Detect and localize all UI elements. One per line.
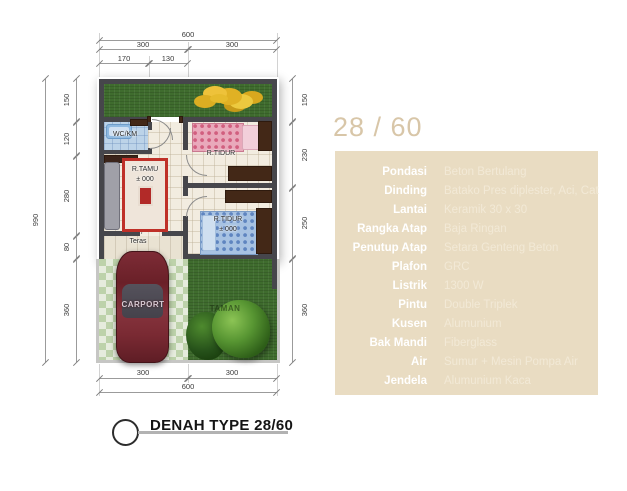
back-garden bbox=[104, 84, 272, 117]
spec-value: Baja Ringan bbox=[444, 220, 507, 239]
spec-label: Dinding bbox=[335, 182, 427, 201]
wall-top bbox=[99, 79, 277, 84]
bed-bedroom1 bbox=[192, 123, 244, 152]
spec-value: Alumunium bbox=[444, 315, 502, 334]
spec-value: Fiberglass bbox=[444, 334, 497, 353]
dim-label-sub-right: 130 bbox=[148, 55, 188, 63]
dim-line-sub-left bbox=[99, 63, 149, 64]
spec-panel: PondasiBeton Bertulang DindingBatako Pre… bbox=[335, 151, 598, 395]
spec-label: Kusen bbox=[335, 315, 427, 334]
spec-row: AirSumur + Mesin Pompa Air bbox=[335, 353, 598, 372]
dim-line-right-1 bbox=[292, 79, 293, 122]
spec-label: Rangka Atap bbox=[335, 220, 427, 239]
spec-value: Beton Bertulang bbox=[444, 163, 526, 182]
room-label-bedroom2: R.TIDUR bbox=[203, 216, 253, 224]
spec-label: Pondasi bbox=[335, 163, 427, 182]
spec-row: Penutup AtapSetara Genteng Beton bbox=[335, 239, 598, 258]
dim-label-bottom-left: 300 bbox=[123, 369, 163, 377]
spec-label: Plafon bbox=[335, 258, 427, 277]
cabinet-bedroom2 bbox=[256, 208, 272, 254]
spec-value: 1300 W bbox=[444, 277, 484, 296]
spec-row: DindingBatako Pres diplester, Aci, Cat bbox=[335, 182, 598, 201]
room-label-wc: WC/KM bbox=[103, 131, 147, 139]
spec-value: Alumunium Kaca bbox=[444, 372, 531, 391]
dim-label-left-5: 360 bbox=[63, 298, 71, 322]
spec-row: PondasiBeton Bertulang bbox=[335, 163, 598, 182]
dim-line-left-total bbox=[45, 79, 46, 362]
spec-row: Bak MandiFiberglass bbox=[335, 334, 598, 353]
dim-label-top-total: 600 bbox=[168, 31, 208, 39]
headboard-bedroom1 bbox=[258, 121, 272, 151]
dim-label-top-right: 300 bbox=[212, 41, 252, 49]
dim-line-left-1 bbox=[76, 79, 77, 122]
dim-label-left-2: 120 bbox=[63, 127, 71, 151]
spec-value: Keramik 30 x 30 bbox=[444, 201, 527, 220]
spec-label: Penutup Atap bbox=[335, 239, 427, 258]
carpet-ornament bbox=[138, 186, 153, 206]
dim-label-sub-left: 170 bbox=[104, 55, 144, 63]
dim-line-top-right bbox=[188, 49, 277, 50]
spec-value: Setara Genteng Beton bbox=[444, 239, 558, 258]
spec-label: Lantai bbox=[335, 201, 427, 220]
bathroom-cabinet bbox=[130, 119, 148, 126]
room-label-living: R.TAMU bbox=[124, 166, 166, 174]
dim-line-right-4 bbox=[292, 259, 293, 362]
room-level-bedroom2: ± 000 bbox=[203, 226, 253, 234]
spec-value: Batako Pres diplester, Aci, Cat bbox=[444, 182, 599, 201]
wall-wc-bottom bbox=[104, 150, 152, 154]
dim-line-left-5 bbox=[76, 259, 77, 362]
caption-title: DENAH TYPE 28/60 bbox=[150, 417, 293, 434]
wall-mid-lower bbox=[183, 216, 188, 259]
dim-line-bottom-total bbox=[99, 392, 277, 393]
dim-label-right-4: 360 bbox=[301, 298, 309, 322]
wall-bedrooms-divider bbox=[183, 183, 272, 188]
spec-label: Pintu bbox=[335, 296, 427, 315]
dim-label-bottom-right: 300 bbox=[212, 369, 252, 377]
spec-value: Sumur + Mesin Pompa Air bbox=[444, 353, 578, 372]
spec-value: GRC bbox=[444, 258, 470, 277]
room-label-carport: CARPORT bbox=[118, 300, 168, 309]
sofa bbox=[104, 162, 120, 230]
dim-label-left-1: 150 bbox=[63, 88, 71, 112]
spec-row: KusenAlumunium bbox=[335, 315, 598, 334]
wardrobe-bedroom2 bbox=[225, 190, 272, 203]
fence-right bbox=[277, 259, 280, 363]
wall-right bbox=[272, 79, 277, 259]
spec-row: LantaiKeramik 30 x 30 bbox=[335, 201, 598, 220]
dim-line-left-3 bbox=[76, 156, 77, 236]
dim-label-bottom-total: 600 bbox=[168, 383, 208, 391]
room-level-living: ± 000 bbox=[124, 176, 166, 184]
extension-line bbox=[188, 364, 189, 383]
dim-line-left-2 bbox=[76, 122, 77, 156]
spec-label: Bak Mandi bbox=[335, 334, 427, 353]
type-title: 28 / 60 bbox=[333, 112, 423, 143]
spec-label: Jendela bbox=[335, 372, 427, 391]
spec-value: Double Triplek bbox=[444, 296, 518, 315]
dim-label-right-3: 250 bbox=[301, 211, 309, 235]
spec-row: Rangka AtapBaja Ringan bbox=[335, 220, 598, 239]
spec-label: Air bbox=[335, 353, 427, 372]
dim-line-bottom-right bbox=[188, 378, 277, 379]
wardrobe-bedroom1 bbox=[228, 166, 272, 181]
spec-row: PlafonGRC bbox=[335, 258, 598, 277]
wall-right-stub bbox=[272, 259, 277, 289]
fence-left bbox=[96, 259, 99, 363]
room-label-taman: TAMAN bbox=[200, 304, 250, 313]
caption-circle-icon bbox=[112, 419, 139, 446]
dim-line-sub-right bbox=[149, 63, 188, 64]
dim-label-top-left: 300 bbox=[123, 41, 163, 49]
dim-label-left-3: 280 bbox=[63, 184, 71, 208]
dim-label-right-1: 150 bbox=[301, 88, 309, 112]
dim-label-left-4: 80 bbox=[63, 235, 71, 259]
flower-bed bbox=[210, 94, 228, 103]
spec-row: Listrik1300 W bbox=[335, 277, 598, 296]
dim-line-top-left bbox=[99, 49, 188, 50]
spec-row: PintuDouble Triplek bbox=[335, 296, 598, 315]
spec-row: JendelaAlumunium Kaca bbox=[335, 372, 598, 391]
room-label-bedroom1: R.TIDUR bbox=[196, 150, 246, 158]
dim-label-left-total: 990 bbox=[32, 208, 40, 232]
spec-label: Listrik bbox=[335, 277, 427, 296]
wall-mid-upper bbox=[183, 122, 188, 150]
dim-line-right-3 bbox=[292, 188, 293, 259]
dim-line-bottom-left bbox=[99, 378, 188, 379]
room-label-teras: Teras bbox=[118, 238, 158, 246]
dim-line-right-2 bbox=[292, 122, 293, 188]
dim-label-right-2: 230 bbox=[301, 143, 309, 167]
